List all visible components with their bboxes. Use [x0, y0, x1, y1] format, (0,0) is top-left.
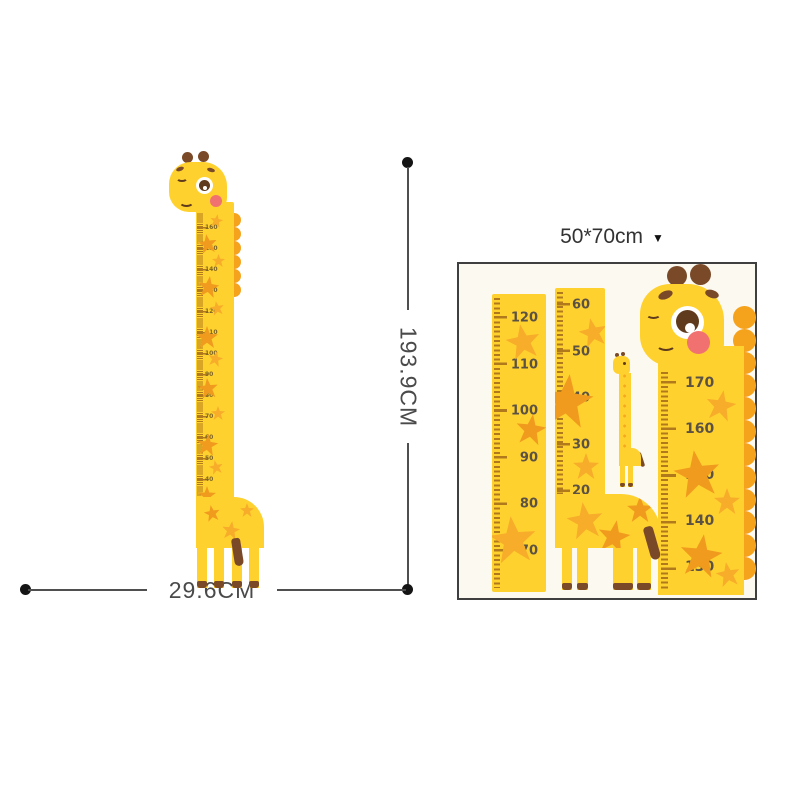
chevron-down-icon: ▼	[652, 231, 664, 245]
star-icon	[203, 504, 222, 523]
ruler-number: 90	[520, 451, 538, 464]
sheet-eye-glint	[685, 323, 695, 333]
size-dropdown[interactable]: 50*70cm ▼	[537, 224, 687, 250]
giraffe-ossicone	[198, 151, 209, 162]
sheet-eyebrow	[646, 310, 661, 319]
sheet-smile	[656, 338, 676, 351]
sheet-ossicone	[690, 264, 711, 285]
size-label: 50*70cm	[560, 225, 643, 249]
ruler-number: 120	[511, 312, 538, 325]
sheet-cheek	[687, 331, 710, 354]
ruler-number: 140	[205, 267, 218, 273]
ruler-number: 90	[205, 372, 213, 378]
sheet-giraffe-leg	[577, 548, 588, 590]
sheet-ossicone	[667, 266, 687, 286]
scallop-bump	[733, 306, 756, 329]
ruler-number: 100	[511, 405, 538, 418]
ruler-number: 50	[205, 456, 213, 462]
giraffe-smile	[179, 197, 194, 207]
ruler-number: 160	[205, 225, 218, 231]
mini-head	[613, 356, 630, 374]
ruler-number: 160	[685, 422, 714, 436]
height-value: 193.9CM	[395, 327, 422, 427]
mini-neck-ruler	[619, 373, 631, 455]
giraffe-leg	[249, 548, 259, 588]
ruler-number: 60	[572, 299, 590, 312]
dimension-line	[28, 589, 147, 591]
giraffe-cheek	[210, 195, 222, 207]
giraffe-eyebrow	[176, 174, 188, 182]
ruler-number: 170	[685, 376, 714, 390]
ruler-number: 140	[685, 514, 714, 528]
giraffe-body	[196, 497, 264, 548]
mini-eye	[623, 362, 626, 365]
giraffe-leg	[197, 548, 207, 588]
star-icon	[240, 503, 254, 517]
mini-leg	[628, 466, 633, 487]
dimension-line	[407, 443, 409, 586]
ruler-number: 70	[205, 414, 213, 420]
giraffe-leg	[214, 548, 224, 588]
ruler-number: 110	[511, 358, 538, 371]
product-image: 1701601501401301201101009080706050403020…	[0, 0, 800, 800]
ruler-number: 30	[572, 438, 590, 451]
sheet-neck-ruler: 170160150140130	[658, 346, 744, 595]
star-icon	[565, 500, 606, 541]
dimension-line	[407, 167, 409, 310]
giraffe-eye-glint	[203, 186, 207, 190]
sheet-giraffe-leg	[613, 548, 633, 590]
mini-body	[619, 448, 641, 466]
ruler-number: 80	[520, 498, 538, 511]
mini-leg	[620, 466, 625, 487]
star-icon	[595, 517, 632, 548]
sheet-giraffe-leg	[562, 548, 572, 590]
sheet-ruler-strip-left: 120110100908070	[492, 294, 546, 592]
dimension-line	[277, 589, 406, 591]
ruler-number: 40	[205, 477, 213, 483]
sheet-giraffe-leg	[637, 548, 651, 590]
